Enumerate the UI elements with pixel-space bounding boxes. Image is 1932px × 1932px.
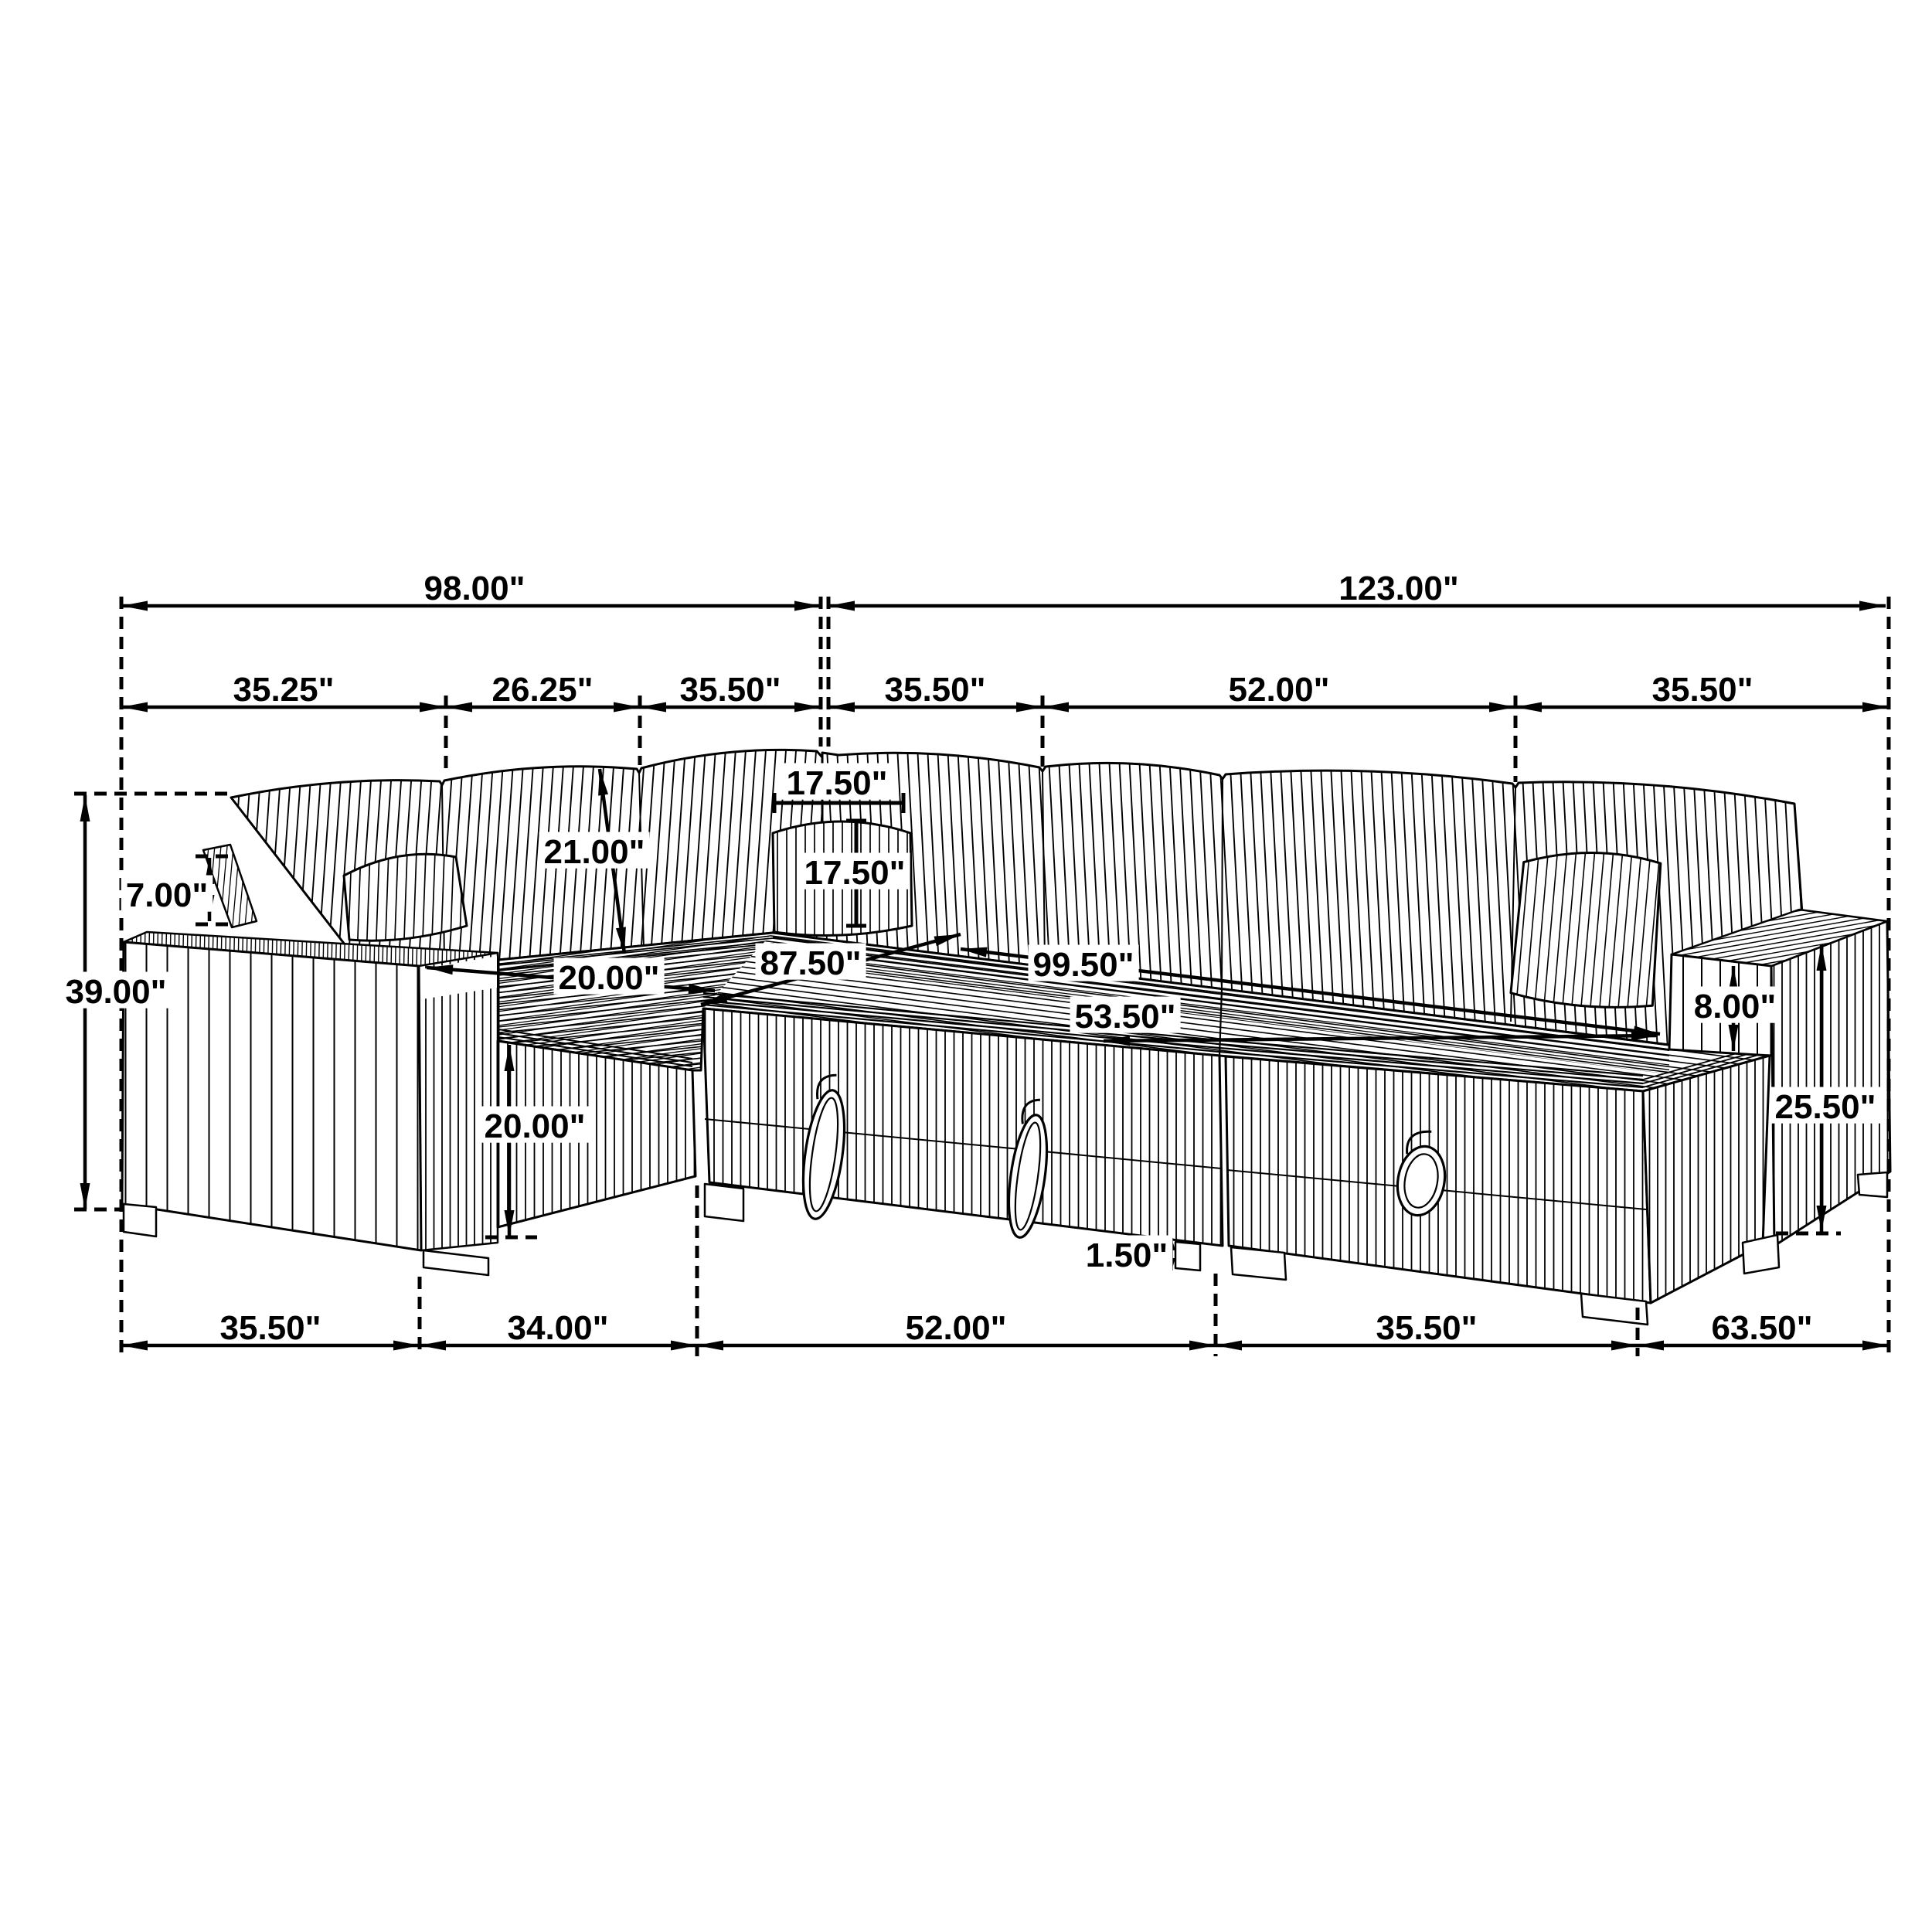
svg-text:52.00": 52.00" (1229, 671, 1330, 709)
svg-text:26.25": 26.25" (492, 671, 594, 709)
svg-text:123.00": 123.00" (1338, 570, 1458, 607)
svg-text:35.25": 35.25" (233, 671, 335, 709)
svg-text:35.50": 35.50" (680, 671, 781, 709)
svg-text:21.00": 21.00" (544, 833, 645, 871)
svg-text:25.50": 25.50" (1775, 1088, 1876, 1126)
svg-text:7.00": 7.00" (126, 876, 209, 914)
svg-text:20.00": 20.00" (485, 1107, 586, 1145)
svg-text:39.00": 39.00" (66, 973, 167, 1011)
svg-text:35.50": 35.50" (885, 671, 986, 709)
svg-text:20.00": 20.00" (559, 959, 660, 997)
svg-text:99.50": 99.50" (1033, 946, 1134, 984)
svg-text:98.00": 98.00" (424, 570, 526, 607)
svg-text:87.50": 87.50" (760, 944, 862, 982)
svg-text:35.50": 35.50" (220, 1309, 321, 1347)
svg-text:1.50": 1.50" (1086, 1236, 1168, 1274)
svg-text:34.00": 34.00" (508, 1309, 609, 1347)
svg-text:35.50": 35.50" (1376, 1309, 1478, 1347)
svg-text:52.00": 52.00" (906, 1309, 1007, 1347)
svg-text:17.50": 17.50" (787, 764, 888, 802)
svg-text:63.50": 63.50" (1712, 1309, 1813, 1347)
svg-text:8.00": 8.00" (1694, 988, 1777, 1026)
svg-text:17.50": 17.50" (804, 854, 906, 892)
svg-text:35.50": 35.50" (1652, 671, 1753, 709)
svg-text:53.50": 53.50" (1075, 998, 1176, 1036)
